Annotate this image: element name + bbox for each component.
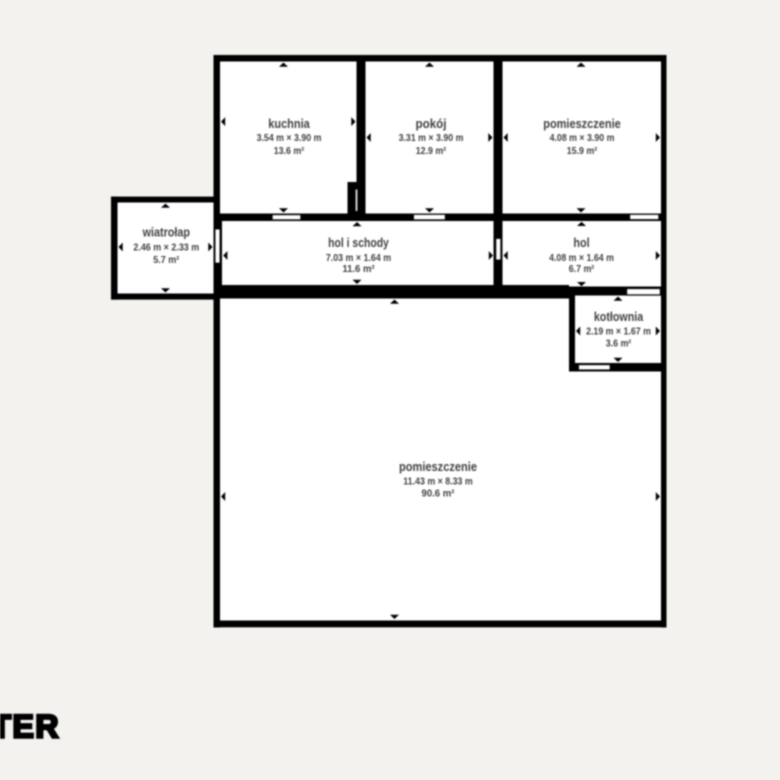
- svg-text:hol: hol: [573, 235, 589, 250]
- svg-text:15.9 m²: 15.9 m²: [567, 146, 598, 157]
- svg-text:3.31 m × 3.90 m: 3.31 m × 3.90 m: [399, 133, 464, 144]
- svg-text:11.6 m²: 11.6 m²: [342, 264, 375, 275]
- svg-text:12.9 m²: 12.9 m²: [416, 146, 447, 157]
- svg-text:wiatrołap: wiatrołap: [142, 225, 190, 240]
- svg-text:2.46 m × 2.33 m: 2.46 m × 2.33 m: [133, 242, 199, 253]
- svg-text:4.08 m × 3.90 m: 4.08 m × 3.90 m: [550, 133, 615, 144]
- svg-text:hol i schody: hol i schody: [328, 235, 389, 250]
- svg-text:3.6 m²: 3.6 m²: [606, 339, 632, 350]
- svg-text:11.43 m × 8.33 m: 11.43 m × 8.33 m: [403, 477, 473, 488]
- svg-text:pokój: pokój: [416, 116, 447, 131]
- svg-text:kotłownia: kotłownia: [594, 309, 644, 324]
- svg-text:90.6 m²: 90.6 m²: [422, 488, 456, 499]
- svg-text:kuchnia: kuchnia: [268, 116, 310, 131]
- svg-text:6.7 m²: 6.7 m²: [569, 264, 595, 275]
- svg-text:pomieszczenie: pomieszczenie: [543, 116, 621, 131]
- svg-text:TER: TER: [0, 708, 60, 744]
- svg-text:3.54 m × 3.90 m: 3.54 m × 3.90 m: [257, 133, 322, 144]
- svg-text:2.19 m × 1.67 m: 2.19 m × 1.67 m: [586, 327, 651, 338]
- svg-text:pomieszczenie: pomieszczenie: [399, 459, 477, 474]
- svg-text:5.7 m²: 5.7 m²: [153, 255, 180, 266]
- svg-text:4.08 m × 1.64 m: 4.08 m × 1.64 m: [549, 253, 614, 264]
- svg-text:13.6 m²: 13.6 m²: [274, 146, 305, 157]
- svg-text:7.03 m × 1.64 m: 7.03 m × 1.64 m: [326, 253, 391, 264]
